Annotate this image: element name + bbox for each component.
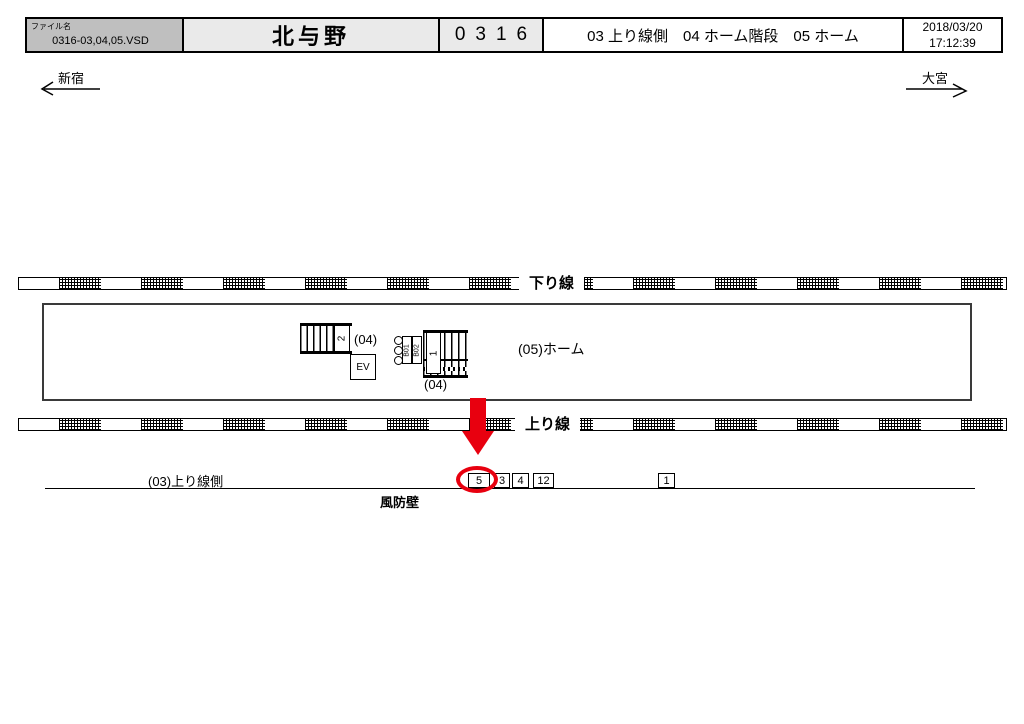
- stairs-right-number: 1: [428, 350, 439, 356]
- position-box-12: 12: [533, 473, 554, 488]
- track-hatch-segment: [223, 278, 265, 289]
- track-hatch-segment: [387, 419, 429, 430]
- direction-right-arrow: 大宮: [900, 68, 980, 98]
- stairs-right-number-box: 1: [426, 332, 441, 374]
- direction-left-arrow: 新宿: [36, 68, 106, 96]
- track-hatch-segment: [59, 278, 101, 289]
- track-hatch-segment: [305, 419, 347, 430]
- file-name-cell: ファイル名 0316-03,04,05.VSD: [27, 19, 182, 51]
- gate-b01-box: B01: [402, 336, 412, 364]
- stairs-left-label: (04): [354, 332, 377, 347]
- gate-b02-box: B02: [412, 336, 422, 364]
- right-arrowhead-icon: [953, 84, 966, 97]
- track-hatch-segment: [797, 419, 839, 430]
- highlight-arrow-shaft: [470, 398, 486, 432]
- position-box-1: 1: [658, 473, 675, 488]
- track-hatch-segment: [715, 278, 757, 289]
- station-name: 北与野: [182, 19, 438, 51]
- track-hatch-segment: [141, 419, 183, 430]
- highlight-arrow-head: [462, 431, 494, 455]
- track-hatch-segment: [305, 278, 347, 289]
- file-name-label: ファイル名: [31, 21, 71, 32]
- time-value: 17:12:39: [929, 35, 976, 51]
- position-box-4: 4: [512, 473, 529, 488]
- date-value: 2018/03/20: [922, 19, 982, 35]
- sheet-description: 03 上り線側 04 ホーム階段 05 ホーム: [542, 19, 902, 51]
- timestamp-cell: 2018/03/20 17:12:39: [902, 19, 1001, 51]
- up-line-label: 上り線: [515, 416, 580, 434]
- direction-left-label: 新宿: [58, 71, 84, 86]
- stairs-left-number: 2: [337, 336, 348, 342]
- track-hatch-segment: [715, 419, 757, 430]
- direction-right-label: 大宮: [922, 71, 948, 86]
- track-hatch-segment: [797, 278, 839, 289]
- gate-b02-label: B02: [414, 344, 421, 356]
- stairs-left-icon: 2: [300, 323, 352, 354]
- up-line-track: 上り線: [18, 418, 1007, 431]
- stairs-right-icon: 1: [423, 330, 468, 378]
- track-hatch-segment: [387, 278, 429, 289]
- track-hatch-segment: [59, 419, 101, 430]
- stairs-left-number-box: 2: [334, 325, 350, 352]
- gate-b01-label: B01: [404, 344, 411, 356]
- station-diagram-page: ファイル名 0316-03,04,05.VSD 北与野 0316 03 上り線側…: [0, 0, 1024, 724]
- file-name-value: 0316-03,04,05.VSD: [27, 35, 174, 47]
- windbreak-label: 風防壁: [380, 492, 419, 511]
- down-line-label: 下り線: [519, 275, 584, 293]
- track-hatch-segment: [633, 419, 675, 430]
- station-number: 0316: [438, 19, 542, 51]
- highlight-ellipse: [456, 466, 498, 493]
- track-hatch-segment: [961, 419, 1003, 430]
- track-hatch-segment: [633, 278, 675, 289]
- track-hatch-segment: [469, 278, 511, 289]
- track-hatch-segment: [879, 278, 921, 289]
- platform-outline: [42, 303, 972, 401]
- stairs-right-label: (04): [424, 377, 447, 392]
- track-hatch-segment: [879, 419, 921, 430]
- track-hatch-segment: [961, 278, 1003, 289]
- track-hatch-segment: [141, 278, 183, 289]
- elevator-box: EV: [350, 354, 376, 380]
- down-line-track: 下り線: [18, 277, 1007, 290]
- title-block: ファイル名 0316-03,04,05.VSD 北与野 0316 03 上り線側…: [25, 17, 1003, 53]
- track-hatch-segment: [223, 419, 265, 430]
- upline-side-label: (03)上り線側: [148, 471, 223, 490]
- platform-label: (05)ホーム: [518, 339, 584, 359]
